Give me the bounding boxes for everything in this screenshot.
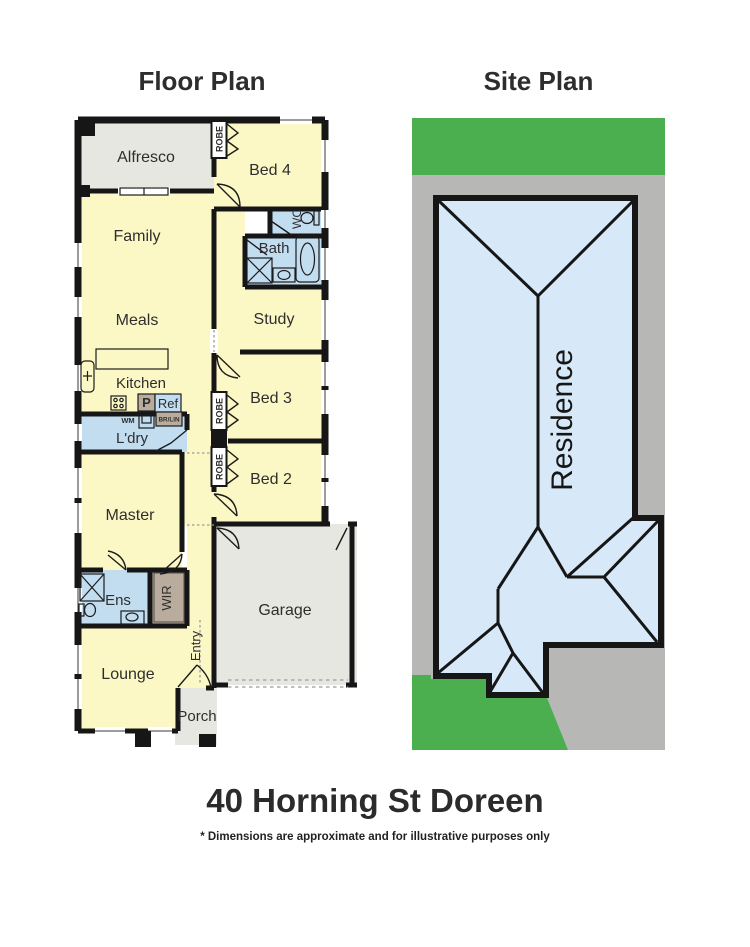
label-pantry: P [142,395,151,410]
label-residence: Residence [546,349,579,491]
label-wc: WC [290,209,304,229]
site-grass-top [412,118,665,175]
label-wir: WIR [159,585,174,610]
label-robe-bed2: ROBE [215,454,225,480]
label-entry: Entry [188,630,203,661]
label-ens: Ens [105,592,131,609]
label-wm: WM [121,416,134,425]
hallway-vestibule [214,209,245,287]
label-ldry: L'dry [116,430,149,447]
label-study: Study [254,311,295,328]
pier-lounge-front [135,731,151,747]
pier-alfresco-bottom [78,185,90,197]
label-bed4: Bed 4 [249,162,291,179]
label-master: Master [106,507,156,524]
label-robe-bed3: ROBE [215,398,225,424]
floor-plan: Alfresco Bed 4 Family Meals Kitchen Stud… [78,120,357,747]
label-fridge: Ref [158,396,179,411]
label-robe-bed4: ROBE [215,126,225,152]
property-address: 40 Horning St Doreen [0,782,750,820]
pier-alfresco-corner [78,120,95,136]
robe-divider-block [211,429,227,448]
label-bed2: Bed 2 [250,471,292,488]
label-alfresco: Alfresco [117,149,175,166]
room-entry [187,525,214,688]
floorplan-page: Floor Plan Site Plan [0,0,750,947]
label-lounge: Lounge [101,666,154,683]
site-plan: Residence [412,118,665,750]
label-kitchen: Kitchen [116,375,166,392]
pier-porch [199,734,216,747]
disclaimer-text: * Dimensions are approximate and for ill… [0,831,750,843]
label-garage: Garage [258,602,311,619]
label-family: Family [113,228,160,245]
label-brlin: BR/LIN [159,417,180,424]
label-porch: Porch [177,708,216,725]
label-bed3: Bed 3 [250,390,292,407]
label-meals: Meals [116,312,159,329]
label-bath: Bath [259,240,290,257]
